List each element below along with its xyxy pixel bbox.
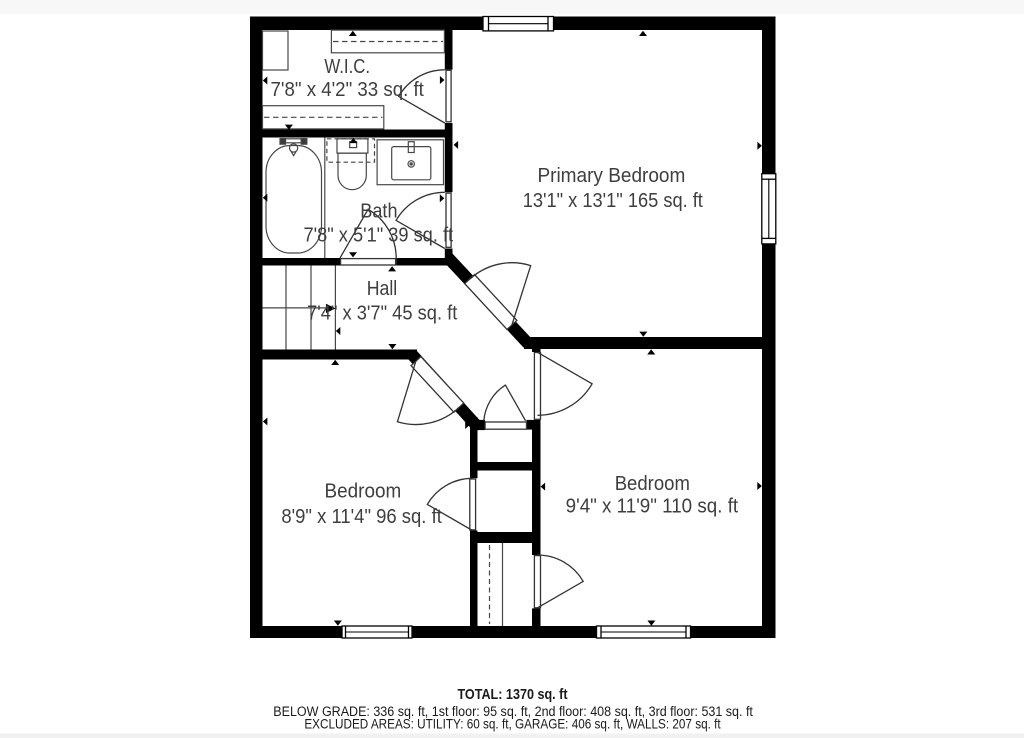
svg-text:Bedroom: Bedroom — [325, 479, 402, 502]
svg-text:Primary Bedroom: Primary Bedroom — [537, 164, 685, 187]
svg-text:TOTAL: 1370 sq. ft: TOTAL: 1370 sq. ft — [457, 687, 567, 703]
svg-text:7'4" x 3'7" 45 sq. ft: 7'4" x 3'7" 45 sq. ft — [307, 302, 457, 325]
svg-text:Hall: Hall — [367, 277, 398, 300]
svg-text:EXCLUDED AREAS: UTILITY: 60 sq: EXCLUDED AREAS: UTILITY: 60 sq. ft, GARA… — [304, 717, 720, 732]
svg-text:8'9" x 11'4" 96 sq. ft: 8'9" x 11'4" 96 sq. ft — [281, 505, 442, 528]
svg-text:Bedroom: Bedroom — [615, 472, 690, 495]
svg-text:13'1" x 13'1" 165 sq. ft: 13'1" x 13'1" 165 sq. ft — [523, 189, 703, 212]
svg-text:9'4" x 11'9" 110 sq. ft: 9'4" x 11'9" 110 sq. ft — [566, 495, 739, 518]
svg-text:7'8" x 4'2" 33 sq. ft: 7'8" x 4'2" 33 sq. ft — [271, 78, 425, 101]
svg-text:7'8" x 5'1" 39 sq. ft: 7'8" x 5'1" 39 sq. ft — [303, 223, 453, 246]
svg-text:Bath: Bath — [360, 200, 397, 223]
svg-text:W.I.C.: W.I.C. — [324, 55, 370, 78]
